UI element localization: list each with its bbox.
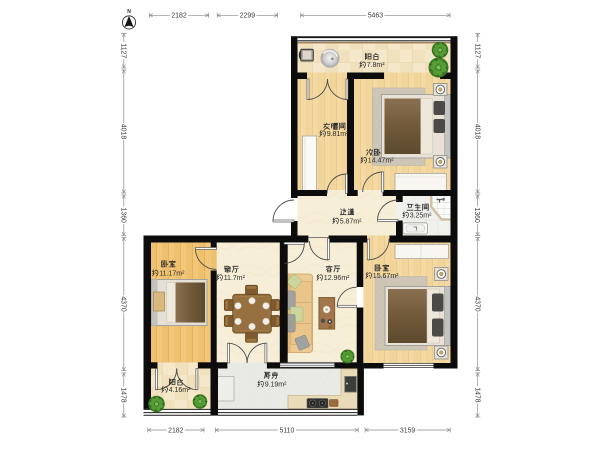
svg-text:4370: 4370 — [119, 296, 126, 311]
svg-text:1478: 1478 — [119, 387, 126, 402]
svg-text:3159: 3159 — [400, 427, 415, 434]
svg-text:7.8m²: 7.8m² — [367, 62, 386, 69]
svg-text:1478: 1478 — [473, 387, 480, 402]
svg-text:5463: 5463 — [368, 13, 383, 20]
svg-text:1127: 1127 — [473, 43, 480, 58]
svg-text:9.19m²: 9.19m² — [265, 382, 287, 389]
svg-text:9.81m²: 9.81m² — [327, 131, 349, 138]
svg-text:11.17m²: 11.17m² — [159, 271, 185, 278]
svg-text:N: N — [127, 9, 131, 15]
svg-text:4018: 4018 — [473, 124, 480, 139]
svg-text:4370: 4370 — [473, 296, 480, 311]
svg-text:2299: 2299 — [240, 13, 255, 20]
svg-text:12.96m²: 12.96m² — [324, 275, 350, 282]
svg-text:4.16m²: 4.16m² — [169, 387, 191, 394]
svg-text:5.87m²: 5.87m² — [340, 218, 362, 225]
svg-text:2182: 2182 — [171, 13, 186, 20]
svg-text:4018: 4018 — [119, 124, 126, 139]
svg-text:1360: 1360 — [119, 208, 126, 223]
svg-text:11.7m²: 11.7m² — [224, 275, 246, 282]
svg-text:5110: 5110 — [279, 427, 294, 434]
svg-text:14.47m²: 14.47m² — [368, 158, 394, 165]
svg-text:3.25m²: 3.25m² — [410, 213, 432, 220]
svg-text:2182: 2182 — [168, 427, 183, 434]
svg-text:1360: 1360 — [473, 208, 480, 223]
svg-text:1127: 1127 — [120, 43, 127, 58]
svg-text:15.67m²: 15.67m² — [373, 273, 399, 280]
